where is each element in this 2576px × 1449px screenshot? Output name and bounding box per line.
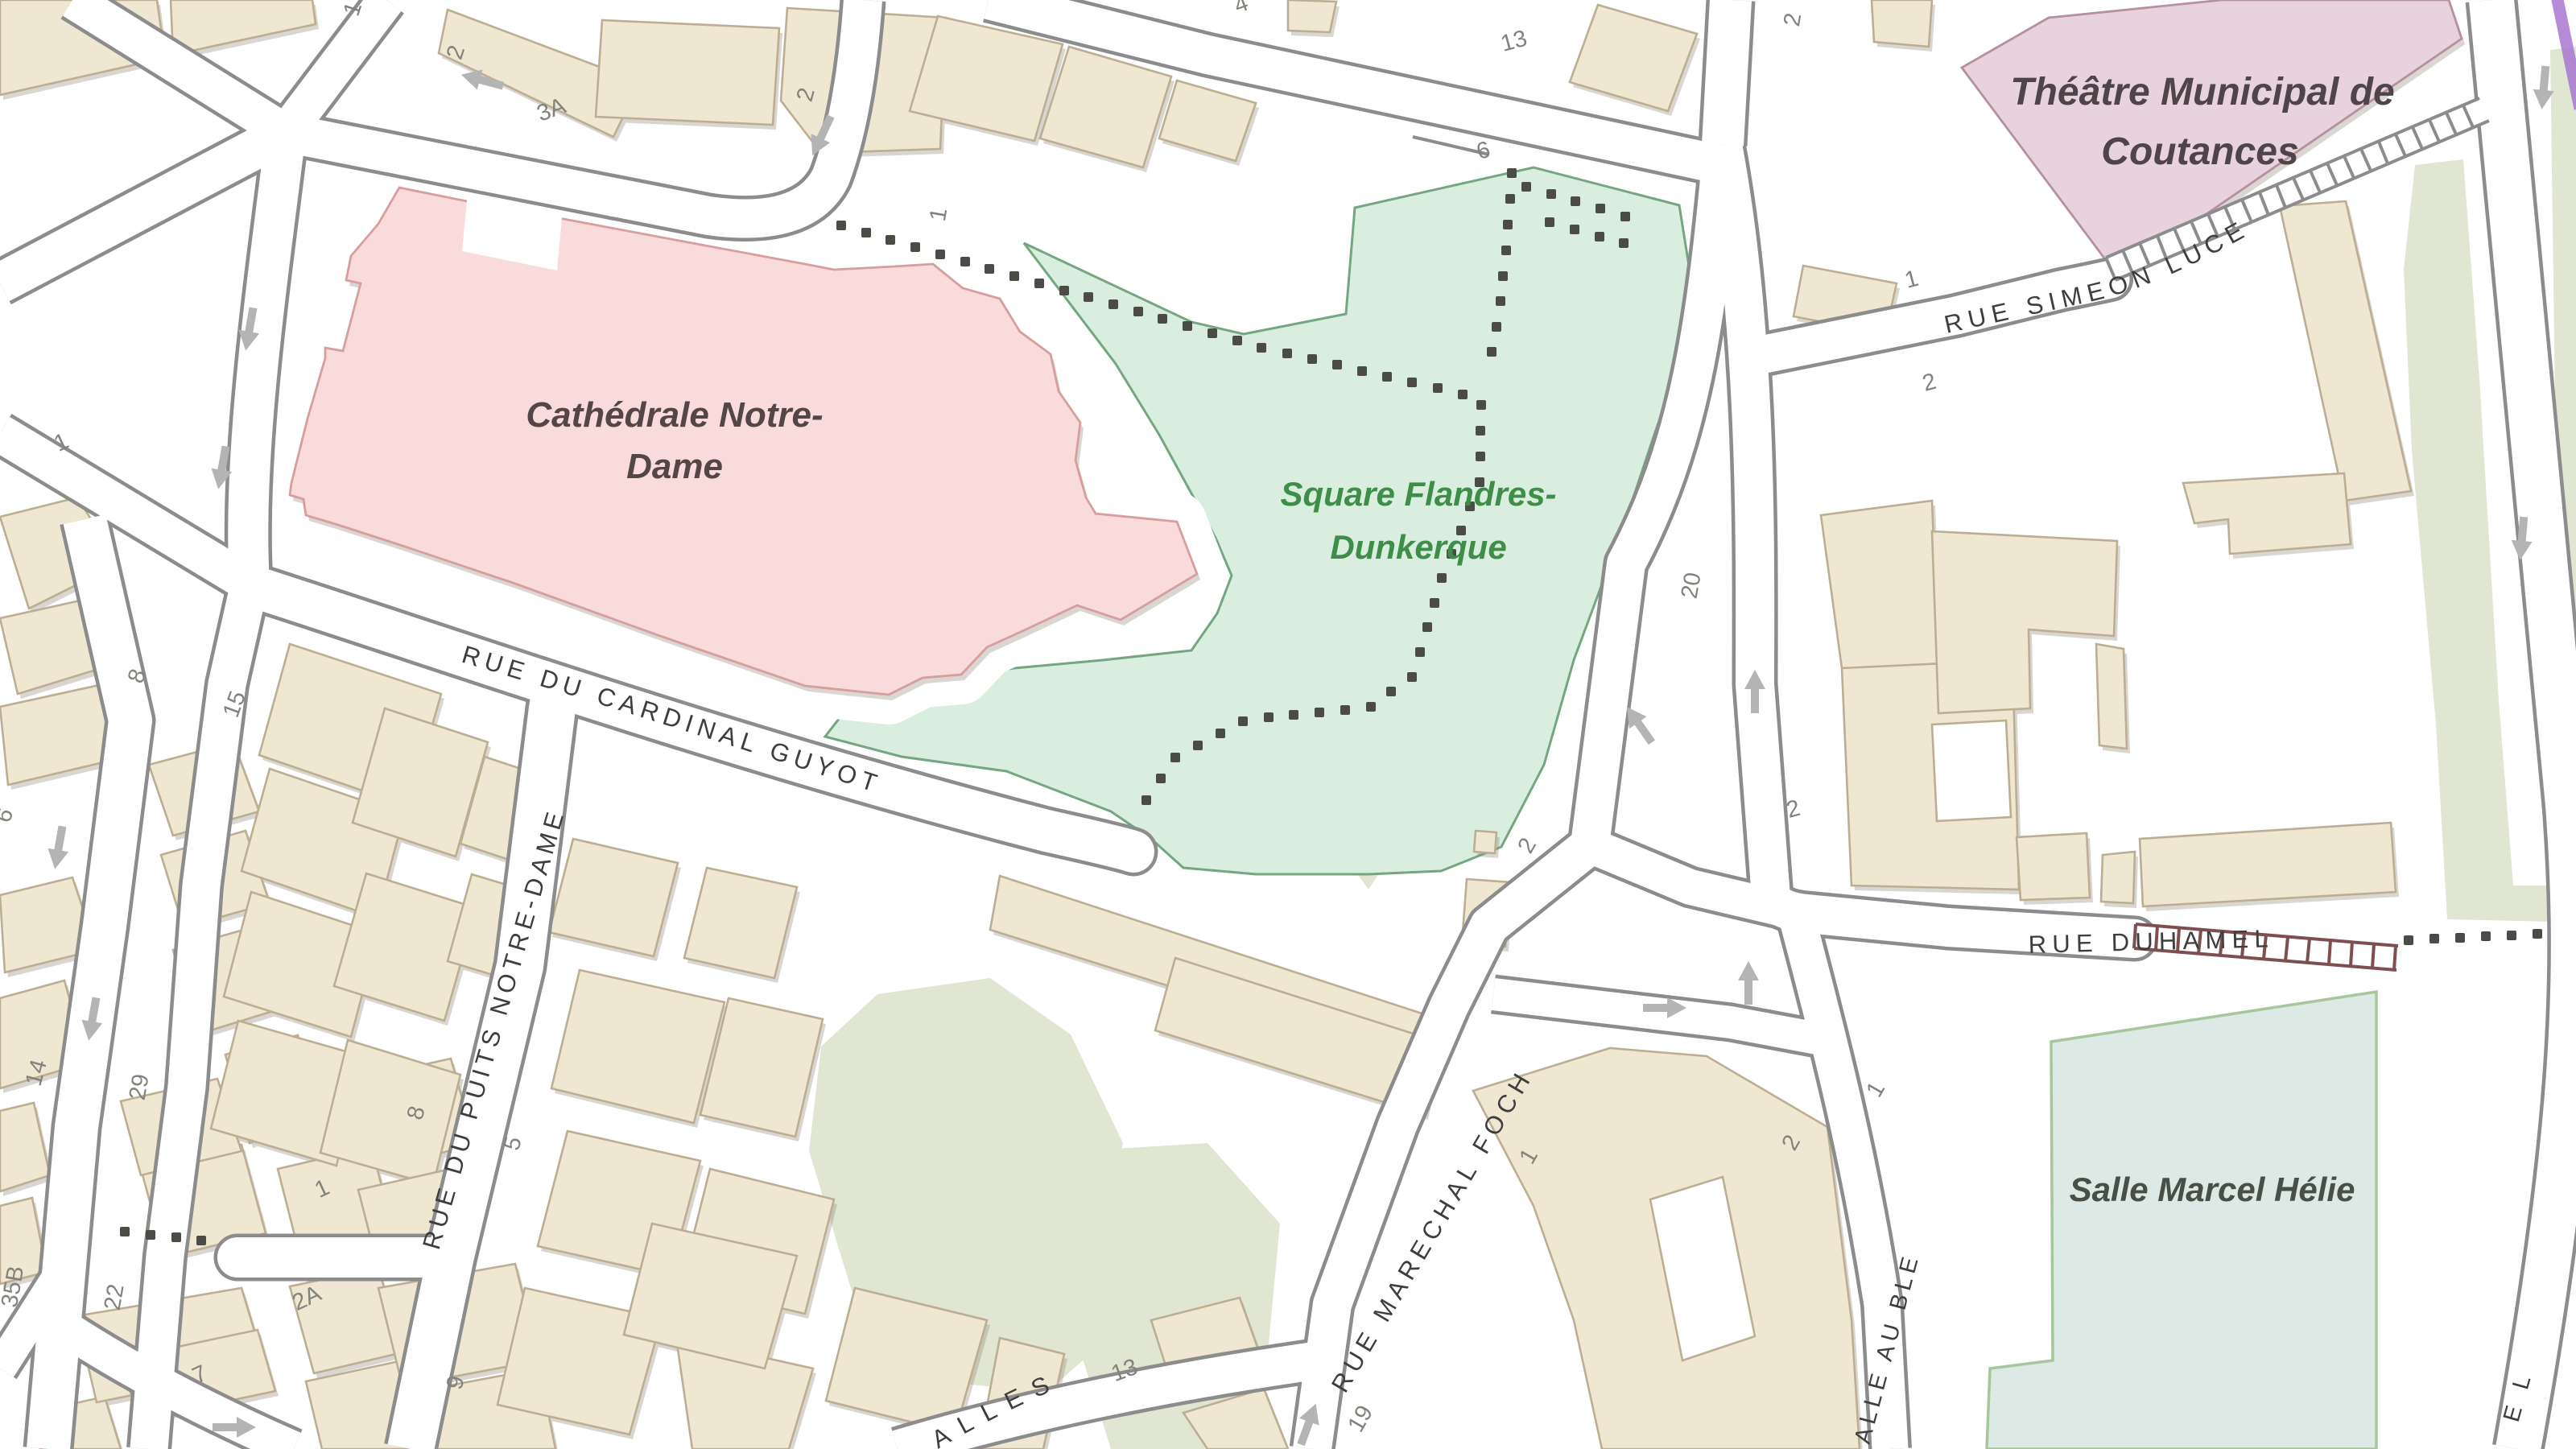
- svg-text:22: 22: [100, 1282, 130, 1312]
- svg-text:Cathédrale Notre-: Cathédrale Notre-: [526, 395, 823, 435]
- svg-text:Salle Marcel Hélie: Salle Marcel Hélie: [2070, 1170, 2355, 1208]
- svg-text:Théâtre Municipal de: Théâtre Municipal de: [2010, 71, 2394, 114]
- svg-text:20: 20: [1677, 571, 1707, 601]
- svg-text:Dame: Dame: [626, 447, 723, 486]
- svg-text:Dunkerque: Dunkerque: [1330, 528, 1506, 566]
- svg-text:29: 29: [125, 1072, 155, 1102]
- svg-text:Coutances: Coutances: [2101, 130, 2298, 173]
- svg-text:Square Flandres-: Square Flandres-: [1280, 475, 1556, 513]
